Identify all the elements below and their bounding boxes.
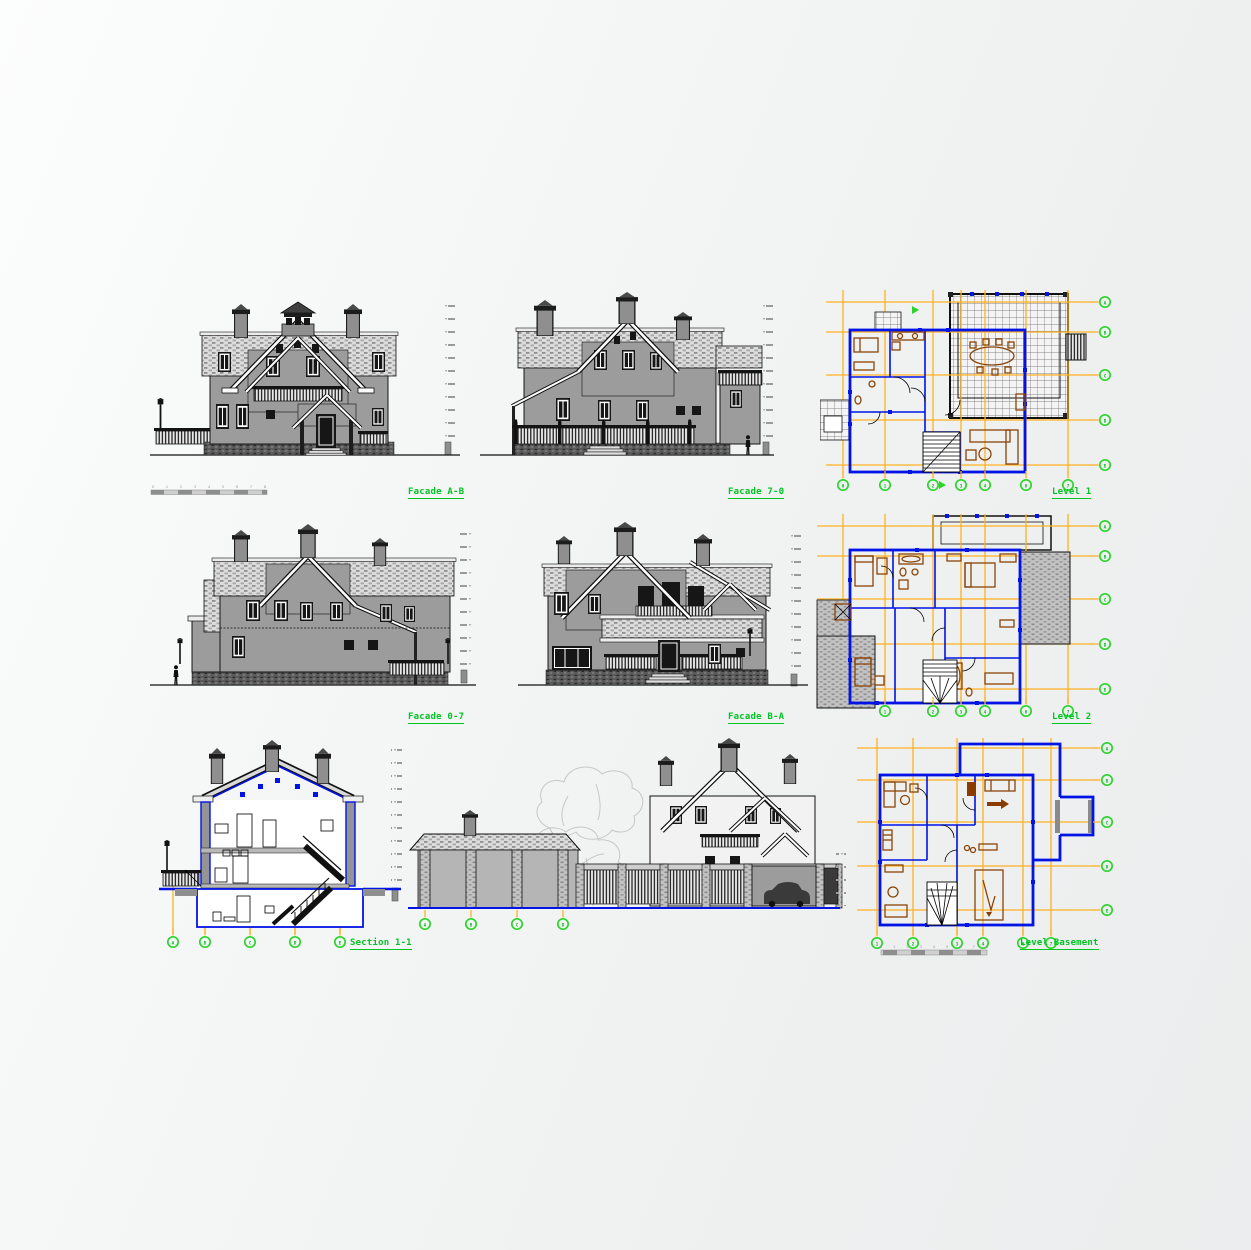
chimney-icon (315, 748, 331, 784)
svg-text:D: D (1106, 864, 1109, 869)
chimney-icon (694, 534, 712, 566)
axis-marker (939, 481, 946, 489)
chimney-icon (263, 740, 281, 772)
label-facade-07: Facade 0-7 (408, 712, 464, 724)
svg-text:E: E (1104, 687, 1107, 692)
label-level-1: Level 1 (1052, 487, 1091, 499)
stairs (923, 432, 960, 472)
elevation-ruler (836, 851, 846, 906)
svg-text:C: C (1104, 597, 1107, 602)
svg-text:3: 3 (194, 484, 197, 489)
svg-text:6: 6 (1025, 483, 1028, 488)
roof-hatch-left (817, 636, 875, 708)
scale-bar-ticks: 012345678 (880, 944, 989, 949)
roof-terrace-outline (933, 514, 1051, 550)
svg-text:1: 1 (166, 484, 169, 489)
garage (410, 810, 580, 908)
svg-text:4: 4 (933, 944, 936, 949)
svg-text:4: 4 (984, 483, 987, 488)
svg-text:D: D (1104, 418, 1107, 423)
balcony (1066, 334, 1086, 360)
elevation-ruler (790, 528, 801, 676)
drawing-facade-ba (518, 522, 808, 717)
svg-text:D: D (294, 940, 297, 945)
lamp-post-icon (177, 638, 183, 664)
terrace (948, 292, 1068, 418)
entrance-porch (293, 395, 361, 455)
label-section-11: Section 1-1 (350, 938, 412, 950)
chimney-icon (344, 304, 362, 338)
chimney-icon (462, 810, 478, 836)
side-door (824, 868, 838, 904)
chimney-icon (232, 530, 250, 562)
svg-text:B: B (1104, 554, 1107, 559)
svg-text:1: 1 (876, 941, 879, 946)
svg-text:1: 1 (884, 709, 887, 714)
drawing-level-1: 0123467 ABCDE (820, 282, 1120, 497)
svg-text:B: B (470, 922, 473, 927)
level-basement-svg: 123467 ABCDE 012345678 (855, 730, 1125, 965)
svg-text:6: 6 (1025, 709, 1028, 714)
svg-text:E: E (1106, 908, 1109, 913)
grid-bubbles-right: ABCDE (1091, 521, 1110, 694)
chimney-icon (232, 304, 250, 338)
grid-bubbles-right: ABCDE (1093, 743, 1112, 915)
svg-text:4: 4 (984, 709, 987, 714)
level-2-svg: 123467 ABCDE (815, 508, 1120, 723)
mid-shingle-band (600, 615, 764, 642)
drawing-facade-70 (478, 292, 778, 492)
svg-text:C: C (1106, 820, 1109, 825)
svg-text:2: 2 (932, 709, 935, 714)
svg-text:6: 6 (236, 484, 239, 489)
roof-hatch-right (1020, 552, 1070, 644)
svg-text:2: 2 (932, 483, 935, 488)
svg-text:7: 7 (250, 484, 253, 489)
svg-text:4: 4 (982, 941, 985, 946)
balcony-section (161, 840, 201, 886)
chimney-icon (614, 522, 636, 556)
lamp-post-icon (157, 398, 164, 430)
svg-text:D: D (1104, 642, 1107, 647)
entry-porch (820, 400, 850, 440)
scale-bar (881, 950, 987, 955)
roof-cupola (281, 302, 315, 336)
label-facade-70: Facade 7-0 (728, 487, 784, 499)
level-1-svg: 0123467 ABCDE (820, 282, 1120, 497)
svg-text:8: 8 (264, 484, 267, 489)
scale-bar: 012345678 (150, 482, 350, 498)
svg-text:3: 3 (960, 483, 963, 488)
drawing-sheet: 012345678 (0, 0, 1251, 1250)
drawing-facade-07 (148, 520, 478, 710)
drawing-garage-elevation: ABCD (400, 736, 850, 941)
garage-elevation-svg: ABCD (400, 736, 850, 941)
svg-text:2: 2 (912, 941, 915, 946)
drawing-level-basement: 123467 ABCDE 012345678 (855, 730, 1125, 965)
svg-text:3: 3 (920, 944, 923, 949)
facade-ab-svg (148, 292, 463, 492)
chimney-icon (372, 538, 388, 566)
upper-extension (960, 744, 1093, 860)
svg-text:C: C (1104, 373, 1107, 378)
chimney-icon (298, 524, 318, 558)
elevation-ruler (762, 300, 773, 446)
svg-text:5: 5 (946, 944, 949, 949)
svg-text:E: E (1104, 463, 1107, 468)
grid-bubbles-bottom: 0123467 (838, 471, 1073, 490)
side-balcony (716, 346, 762, 444)
chimney-icon (674, 312, 692, 340)
svg-text:3: 3 (960, 709, 963, 714)
svg-text:A: A (424, 922, 427, 927)
svg-text:4: 4 (208, 484, 211, 489)
svg-text:0: 0 (152, 484, 155, 489)
elevation-ruler (460, 528, 471, 674)
svg-text:B: B (1106, 778, 1109, 783)
svg-text:1: 1 (884, 483, 887, 488)
grid-bubbles-right: ABCDE (1091, 297, 1110, 470)
gate-with-car (752, 866, 816, 907)
chimney-icon (658, 756, 674, 786)
stairs (927, 882, 957, 925)
scale-bar-ticks: 012345678 (152, 484, 267, 489)
svg-text:E: E (339, 940, 342, 945)
grid-bubbles-bottom: ABCDE (168, 928, 345, 947)
svg-text:D: D (562, 922, 565, 927)
human-figure-icon (174, 665, 179, 685)
drawing-level-2: 123467 ABCDE (815, 508, 1120, 723)
facade-07-svg (148, 520, 478, 710)
svg-text:C: C (516, 922, 519, 927)
label-level-2: Level 2 (1052, 712, 1091, 724)
svg-text:B: B (1104, 330, 1107, 335)
chimney-icon (718, 738, 740, 772)
label-facade-ab: Facade A-B (408, 487, 464, 499)
svg-text:3: 3 (956, 941, 959, 946)
chimney-icon (534, 300, 556, 336)
svg-text:B: B (204, 940, 207, 945)
section-11-svg: ABCDE (145, 736, 410, 956)
facade-ba-svg (518, 522, 808, 717)
svg-text:A: A (1104, 300, 1107, 305)
svg-text:A: A (1106, 746, 1109, 751)
arrow-marker (987, 799, 1009, 809)
svg-text:1: 1 (893, 944, 896, 949)
facade-70-svg (478, 292, 778, 492)
drawing-facade-ab (148, 292, 463, 492)
svg-text:2: 2 (180, 484, 183, 489)
svg-text:0: 0 (842, 483, 845, 488)
triple-window (552, 646, 592, 670)
drawing-section-11: ABCDE (145, 736, 410, 956)
stairs (923, 660, 957, 703)
north-marker (912, 306, 919, 314)
elevation-ruler (444, 300, 455, 446)
grid-bubbles-bottom: ABCD (420, 910, 568, 929)
terrace-railing (156, 431, 210, 444)
grid-bubbles-bottom: 123467 (880, 697, 1073, 716)
label-facade-ba: Facade B-A (728, 712, 784, 724)
svg-text:5: 5 (222, 484, 225, 489)
svg-text:A: A (172, 940, 175, 945)
chimney-icon (556, 536, 572, 564)
basement-section (159, 889, 401, 927)
chimney-icon (209, 748, 225, 784)
svg-text:C: C (249, 940, 252, 945)
svg-text:7: 7 (973, 944, 976, 949)
svg-text:A: A (1104, 524, 1107, 529)
chimney-icon (616, 292, 638, 324)
label-level-basement: Level Basement (1020, 938, 1099, 950)
chimney-icon (782, 754, 798, 784)
